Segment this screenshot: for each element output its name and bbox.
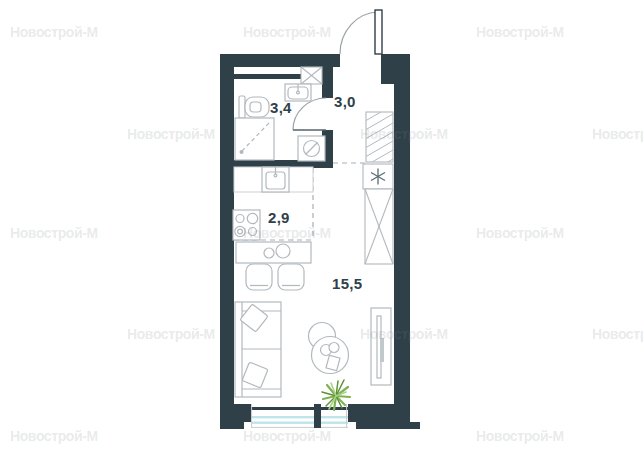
- asterisk-unit-icon: [363, 164, 393, 189]
- washing-machine-icon: [298, 136, 325, 161]
- sofa-icon: [235, 302, 281, 397]
- floor-plan: [0, 0, 643, 450]
- tv-stand-icon: [371, 308, 391, 385]
- room-label-kitchen: 2,9: [268, 209, 290, 226]
- window-mullion: [314, 404, 321, 428]
- dining-table-icon: [236, 242, 311, 263]
- chairs-icon: [246, 264, 304, 290]
- toilet-icon: [239, 96, 269, 118]
- shower-icon: [235, 118, 274, 160]
- room-label-bathroom: 3,4: [270, 99, 292, 116]
- room-label-living-room: 15,5: [332, 275, 362, 292]
- wardrobe-icon: [365, 189, 393, 264]
- entrance-door-icon: [340, 10, 382, 54]
- kitchen-sink-icon: [262, 167, 289, 192]
- room-label-hallway: 3,0: [334, 93, 356, 110]
- floor-plan-image: 3,4 3,0 2,9 15,5 Новострой-МНовострой-МН…: [0, 0, 643, 450]
- stove-icon: [233, 210, 260, 240]
- bathroom-door-icon: [293, 98, 326, 130]
- coffee-tables-icon: [309, 323, 349, 374]
- ventilation-shaft-icon: [301, 67, 322, 84]
